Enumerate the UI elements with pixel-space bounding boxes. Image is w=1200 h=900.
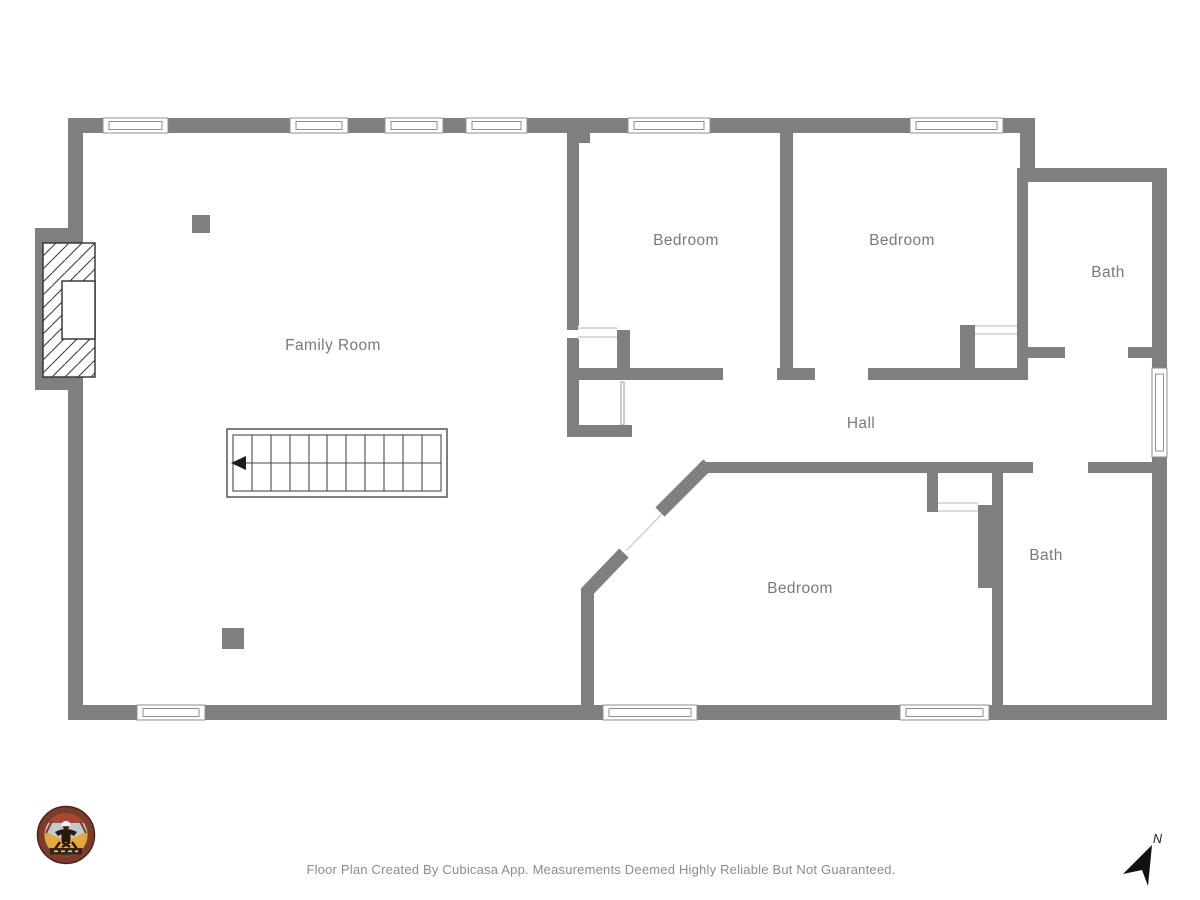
window [1152,368,1167,457]
door-openings [578,324,1017,551]
room-label-family-room: Family Room [285,337,381,354]
door-closet-bedroom2 [975,324,1017,336]
wall-hallcloset-bottom [567,425,632,437]
wall-bath1-bottom-1 [1028,347,1065,358]
wall-left-lower [68,388,83,720]
fireplace [43,243,95,377]
window [628,118,710,133]
room-label-bath-top: Bath [1091,264,1125,281]
door-hall-closet [621,382,624,425]
window [910,118,1003,133]
wall-closet3-left [927,462,938,512]
wall-hall-top-1 [567,368,723,380]
fireplace-firebox [62,281,95,339]
wall-hall-bottom-stub [1088,462,1152,473]
wall-bedroom3-left [588,553,625,712]
wall-bath1-left [1017,168,1028,380]
window [290,118,348,133]
wall-bath2-left [992,462,1003,705]
window [103,118,168,133]
post-bottom [222,628,244,649]
room-label-bedroom-top-left: Bedroom [653,232,719,249]
post-top [192,215,210,233]
disclaimer-text: Floor Plan Created By Cubicasa App. Meas… [306,862,895,877]
door-diagonal [626,514,662,551]
north-arrow-icon [1123,845,1152,886]
wall-closet2-left [960,325,975,380]
windows [103,118,1167,720]
wall-top [68,118,1035,133]
floor-plan-svg: Family Room Bedroom Bedroom Bath Hall Be… [0,0,1200,900]
room-label-bedroom-top-right: Bedroom [869,232,935,249]
wall-bath-top [1020,168,1167,182]
window [900,705,989,720]
floor-plan-page: Family Room Bedroom Bedroom Bath Hall Be… [0,0,1200,900]
wall-left-upper [68,118,83,230]
wall-notch [579,133,590,143]
wall-closet3-right-thick [978,505,992,588]
wall-familyroom-lower [567,338,579,437]
walls [35,118,1167,720]
wall-hall-top-2 [777,368,815,380]
wall-bedroom3-diagonal [660,464,708,512]
window [137,705,205,720]
room-label-hall: Hall [847,415,875,432]
room-label-bath-bottom: Bath [1029,547,1063,564]
wall-bath1-bottom-2 [1128,347,1152,358]
north-label: N [1153,832,1163,846]
wall-bedroom-divider [780,133,793,368]
company-logo [38,807,95,864]
door-closet-bedroom1 [578,326,617,339]
window [385,118,443,133]
room-label-bedroom-bottom: Bedroom [767,580,833,597]
window [603,705,697,720]
stairs [227,429,447,497]
window [466,118,527,133]
north-arrow: N [1123,832,1163,886]
wall-familyroom-bedroom [567,133,579,330]
wall-hall-top-3 [868,368,1028,380]
wall-bedroom3-top [700,462,1033,473]
door-closet-bedroom3 [938,501,978,513]
